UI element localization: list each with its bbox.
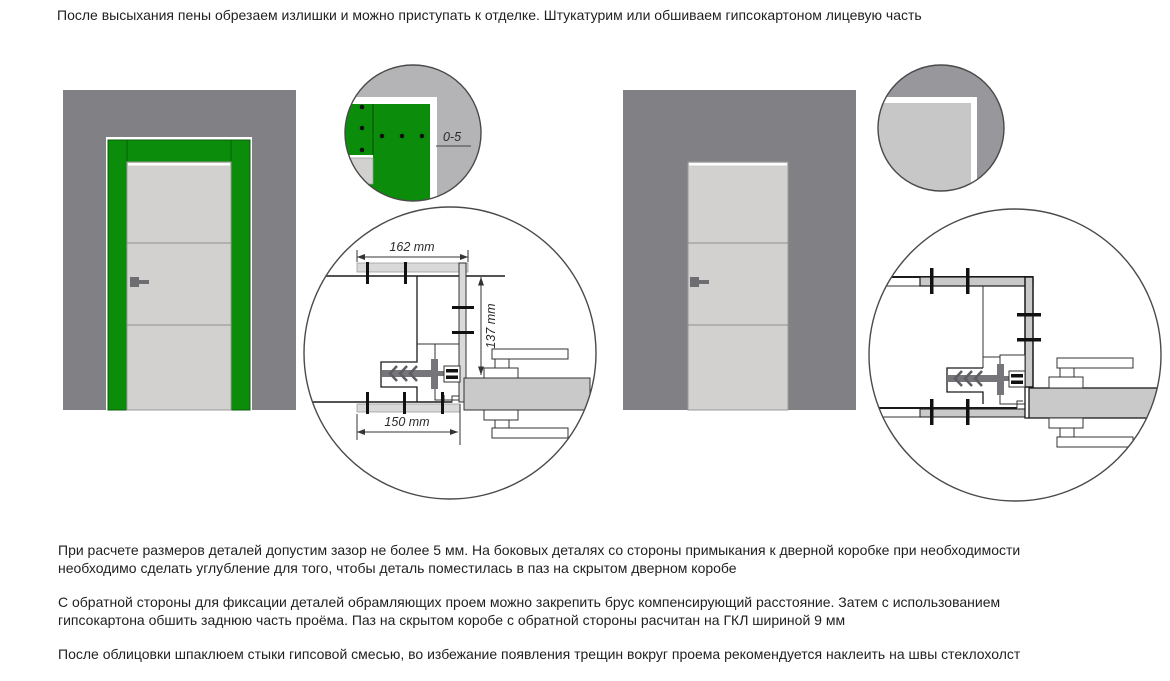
- top-framing-strip: [357, 263, 468, 272]
- gap-dimension-label: 0-5: [443, 130, 461, 144]
- screw-tick: [966, 399, 970, 425]
- bottom-finish-strip: [920, 409, 1025, 417]
- page: После высыхания пены обрезаем излишки и …: [0, 0, 1170, 681]
- paragraph-backside-note: С обратной стороны для фиксации деталей …: [58, 593, 1063, 629]
- screw-tick: [403, 392, 406, 414]
- screw-tick: [404, 262, 407, 284]
- figures-canvas: 0-5: [0, 0, 1170, 530]
- screw-tick: [966, 268, 970, 294]
- screw-tick: [452, 306, 474, 309]
- detail-finished-corner-circle: [870, 65, 1004, 197]
- screw-tick: [366, 262, 369, 284]
- paragraph-gap-note: При расчете размеров деталей допустим за…: [58, 541, 1063, 577]
- bottom-width-label: 150 mm: [384, 415, 429, 429]
- section-finished-circle: [869, 209, 1161, 501]
- door-leaf: [127, 162, 231, 410]
- section-dimensioned-circle: 162 mm 137 mm 150 mm: [304, 207, 596, 499]
- door-top-gap: [128, 163, 230, 166]
- right-door-figure: [623, 90, 856, 410]
- detail-gap-circle: 0-5: [338, 65, 481, 215]
- screw-tick: [930, 268, 934, 294]
- screw-tick: [441, 392, 444, 414]
- door-top-gap: [689, 163, 787, 166]
- door-leaf: [688, 162, 788, 410]
- top-width-label: 162 mm: [389, 240, 434, 254]
- paragraph-finishing-note: После облицовки шпаклюем стыки гипсовой …: [58, 645, 1063, 663]
- hinge: [1009, 371, 1025, 387]
- top-finish-strip: [920, 277, 1033, 286]
- screw-tick: [366, 392, 369, 414]
- bottom-framing-strip: [357, 404, 460, 412]
- door-leaf-section: [1029, 388, 1160, 418]
- screw-tick: [452, 331, 474, 334]
- screw-tick: [1017, 313, 1041, 317]
- frame-profile: [1025, 277, 1033, 387]
- finished-surface: [870, 103, 971, 197]
- screw-tick: [1017, 338, 1041, 342]
- board-end: [344, 158, 373, 184]
- door-leaf-section: [464, 378, 590, 410]
- side-height-label: 137 mm: [484, 303, 498, 348]
- left-door-figure: [63, 90, 296, 410]
- screw-tick: [930, 399, 934, 425]
